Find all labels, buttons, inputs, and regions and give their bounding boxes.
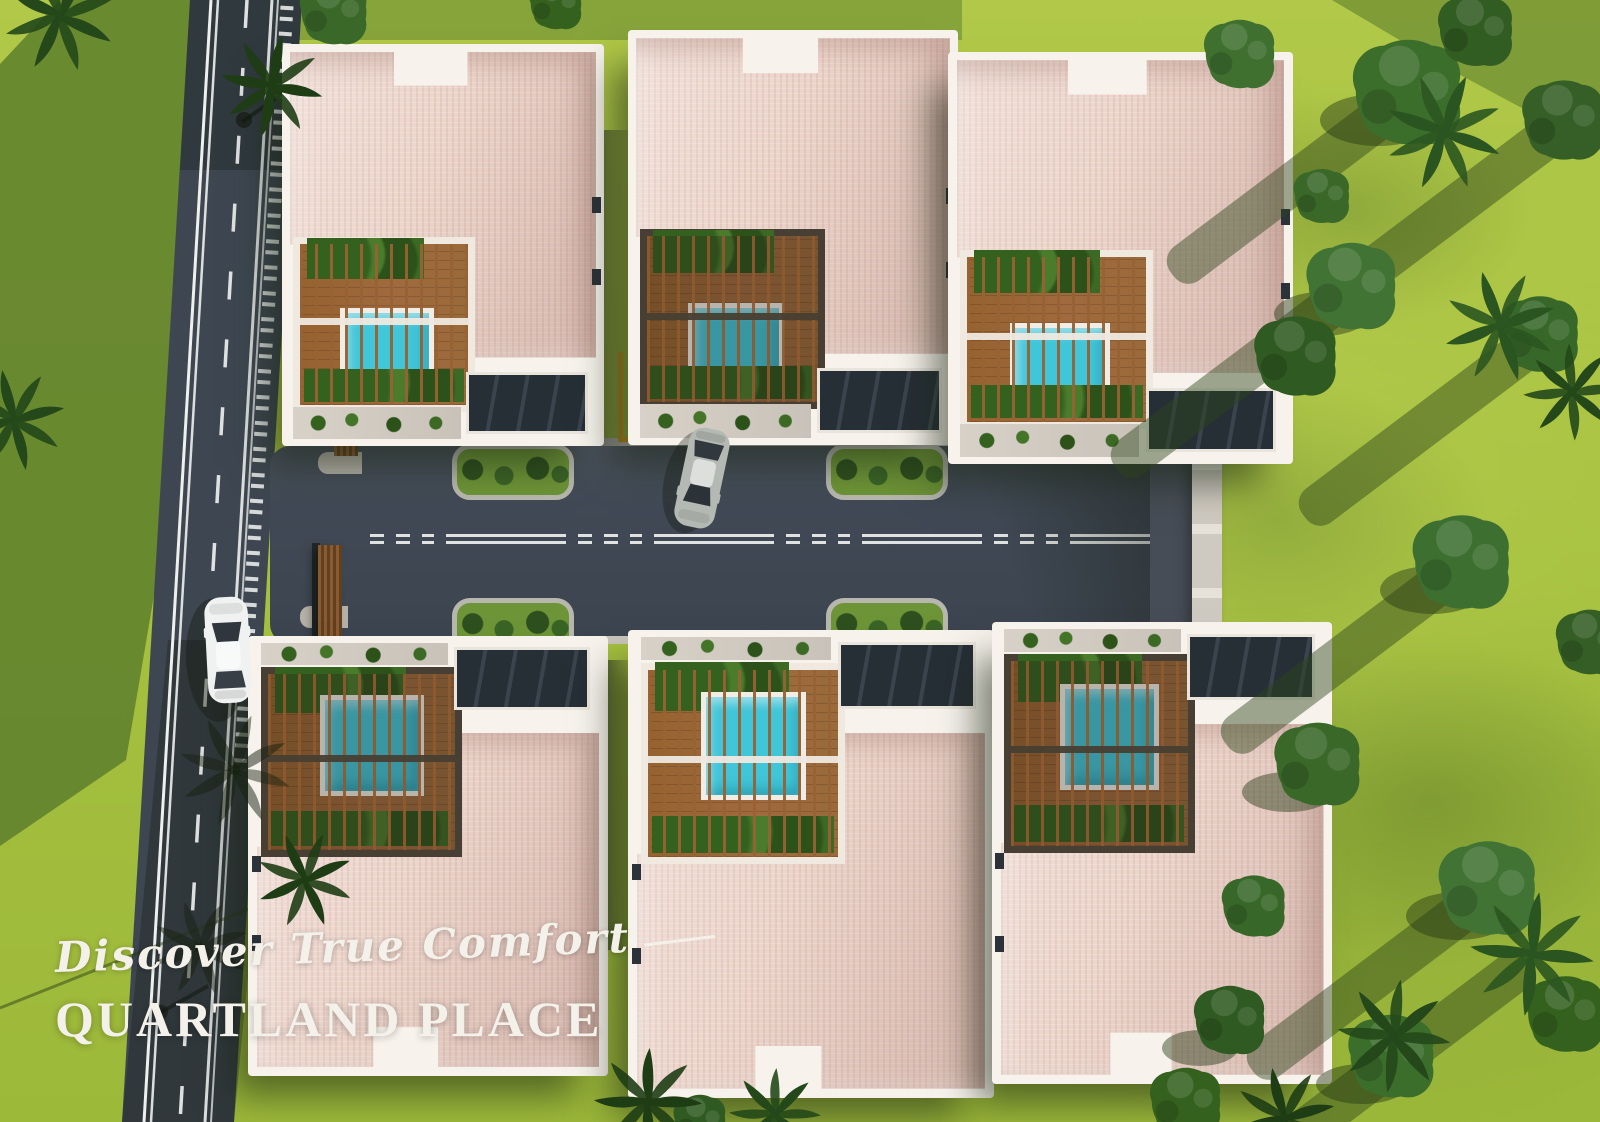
white-car (202, 596, 254, 704)
tree (1556, 610, 1600, 675)
tree (1150, 1068, 1220, 1122)
caption-overlay: Discover True Comfort QUARTLAND PLACE (55, 933, 716, 1048)
tree (1413, 515, 1509, 609)
tree (1294, 169, 1350, 223)
tree (1439, 841, 1535, 935)
aerial-site-render: Discover True Comfort QUARTLAND PLACE (0, 0, 1600, 1122)
tree (1254, 316, 1335, 395)
tree (1194, 986, 1264, 1054)
tree (1222, 875, 1285, 936)
palm-tree (710, 1049, 839, 1122)
tree-shadow-streaks (1104, 83, 1573, 1122)
tree (1438, 0, 1512, 66)
tree (1204, 20, 1274, 88)
white-car-on-street (183, 596, 254, 724)
palm-tree (0, 0, 137, 93)
tree (1274, 723, 1359, 806)
tree (1522, 80, 1600, 159)
tree (1306, 243, 1395, 329)
palm-shadow-on-road (160, 695, 311, 846)
palm-tree (209, 23, 335, 149)
tree (529, 0, 581, 29)
project-title: QUARTLAND PLACE (55, 990, 716, 1048)
tree (300, 0, 367, 44)
silver-car-on-driveway (654, 425, 734, 539)
palm-tree (0, 361, 73, 480)
